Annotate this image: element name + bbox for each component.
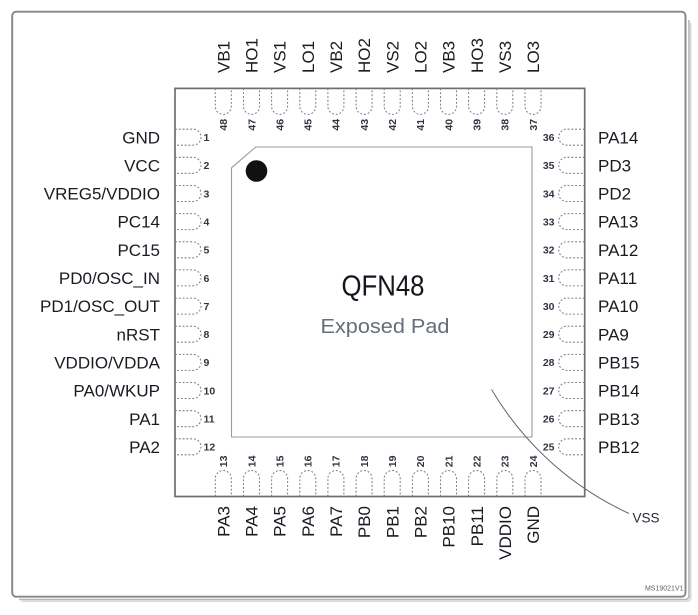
svg-text:20: 20: [415, 455, 427, 467]
svg-text:VB2: VB2: [327, 41, 346, 73]
svg-text:47: 47: [246, 119, 258, 131]
svg-text:2: 2: [204, 160, 210, 172]
svg-text:32: 32: [543, 245, 555, 257]
svg-text:11: 11: [204, 414, 215, 426]
svg-text:PB14: PB14: [598, 382, 640, 401]
svg-text:15: 15: [274, 455, 286, 467]
svg-text:35: 35: [543, 160, 555, 172]
svg-text:26: 26: [543, 414, 555, 426]
svg-text:10: 10: [204, 385, 216, 397]
svg-text:PA4: PA4: [243, 506, 262, 537]
svg-text:28: 28: [543, 357, 555, 369]
svg-text:16: 16: [303, 455, 315, 467]
svg-text:PB0: PB0: [355, 506, 374, 538]
svg-text:4: 4: [204, 216, 210, 228]
svg-text:22: 22: [471, 455, 483, 467]
svg-text:42: 42: [387, 119, 399, 131]
svg-text:23: 23: [500, 455, 512, 467]
svg-text:12: 12: [204, 442, 216, 454]
svg-text:nRST: nRST: [117, 325, 160, 344]
svg-text:25: 25: [543, 442, 555, 454]
svg-text:PB1: PB1: [383, 506, 402, 538]
svg-text:38: 38: [500, 119, 512, 131]
svg-text:PA7: PA7: [327, 506, 346, 537]
svg-text:PD2: PD2: [598, 185, 631, 204]
svg-text:HO2: HO2: [355, 38, 374, 73]
svg-text:33: 33: [543, 216, 555, 228]
svg-text:VS1: VS1: [271, 41, 290, 73]
svg-text:PA6: PA6: [299, 506, 318, 537]
svg-text:PB10: PB10: [440, 506, 459, 548]
svg-text:7: 7: [204, 301, 210, 313]
svg-text:VSS: VSS: [633, 511, 660, 526]
svg-text:PA5: PA5: [271, 506, 290, 537]
svg-text:43: 43: [359, 119, 371, 131]
svg-text:Exposed Pad: Exposed Pad: [321, 315, 450, 338]
svg-text:3: 3: [204, 188, 210, 200]
svg-text:VS3: VS3: [496, 41, 515, 73]
svg-text:PD1/OSC_OUT: PD1/OSC_OUT: [40, 297, 160, 316]
svg-text:PA13: PA13: [598, 213, 638, 232]
svg-text:24: 24: [528, 455, 540, 467]
svg-text:PA14: PA14: [598, 128, 638, 147]
svg-text:48: 48: [218, 119, 230, 131]
svg-text:PB2: PB2: [412, 506, 431, 538]
svg-text:PA1: PA1: [129, 410, 160, 429]
svg-text:VB1: VB1: [214, 41, 233, 73]
svg-text:VS2: VS2: [383, 41, 402, 73]
svg-text:PB13: PB13: [598, 410, 640, 429]
svg-text:40: 40: [443, 119, 455, 131]
svg-text:HO1: HO1: [243, 38, 262, 73]
svg-text:31: 31: [543, 273, 555, 285]
svg-text:PD0/OSC_IN: PD0/OSC_IN: [59, 269, 160, 288]
svg-text:VDDIO/VDDA: VDDIO/VDDA: [54, 354, 160, 373]
svg-text:GND: GND: [122, 128, 160, 147]
svg-text:VCC: VCC: [124, 156, 160, 175]
svg-text:PA9: PA9: [598, 325, 629, 344]
svg-text:44: 44: [331, 119, 343, 131]
svg-text:LO1: LO1: [299, 41, 318, 73]
svg-text:29: 29: [543, 329, 555, 341]
svg-text:LO2: LO2: [412, 41, 431, 73]
svg-text:PD3: PD3: [598, 156, 631, 175]
svg-text:HO3: HO3: [468, 38, 487, 73]
svg-text:MS19021V1: MS19021V1: [645, 585, 684, 592]
svg-text:PA0/WKUP: PA0/WKUP: [73, 382, 160, 401]
svg-text:41: 41: [415, 119, 427, 131]
svg-text:19: 19: [387, 455, 399, 467]
svg-text:6: 6: [204, 273, 210, 285]
svg-text:45: 45: [303, 119, 315, 131]
svg-text:39: 39: [471, 119, 483, 131]
svg-text:34: 34: [543, 188, 555, 200]
svg-text:PC14: PC14: [117, 213, 160, 232]
svg-text:GND: GND: [524, 506, 543, 544]
svg-text:14: 14: [246, 455, 258, 467]
svg-text:21: 21: [443, 455, 455, 467]
svg-text:9: 9: [204, 357, 210, 369]
svg-text:8: 8: [204, 329, 210, 341]
svg-text:PC15: PC15: [117, 241, 160, 260]
svg-text:PA10: PA10: [598, 297, 638, 316]
svg-text:46: 46: [274, 119, 286, 131]
svg-text:5: 5: [204, 245, 210, 257]
svg-text:PA11: PA11: [598, 269, 637, 288]
svg-text:PB15: PB15: [598, 354, 640, 373]
svg-text:36: 36: [543, 132, 555, 144]
svg-text:QFN48: QFN48: [342, 271, 425, 303]
svg-text:1: 1: [204, 132, 210, 144]
svg-text:PA3: PA3: [214, 506, 233, 537]
svg-text:PB12: PB12: [598, 438, 640, 457]
svg-text:30: 30: [543, 301, 555, 313]
svg-text:LO3: LO3: [524, 41, 543, 73]
svg-text:17: 17: [331, 455, 343, 467]
svg-text:PB11: PB11: [468, 506, 487, 546]
svg-text:27: 27: [543, 385, 555, 397]
svg-text:VREG5/VDDIO: VREG5/VDDIO: [44, 185, 160, 204]
svg-text:18: 18: [359, 455, 371, 467]
svg-text:VB3: VB3: [440, 41, 459, 73]
svg-text:37: 37: [528, 119, 540, 131]
svg-text:13: 13: [218, 455, 230, 467]
svg-text:PA12: PA12: [598, 241, 638, 260]
svg-text:VDDIO: VDDIO: [496, 506, 515, 560]
svg-text:PA2: PA2: [129, 438, 160, 457]
